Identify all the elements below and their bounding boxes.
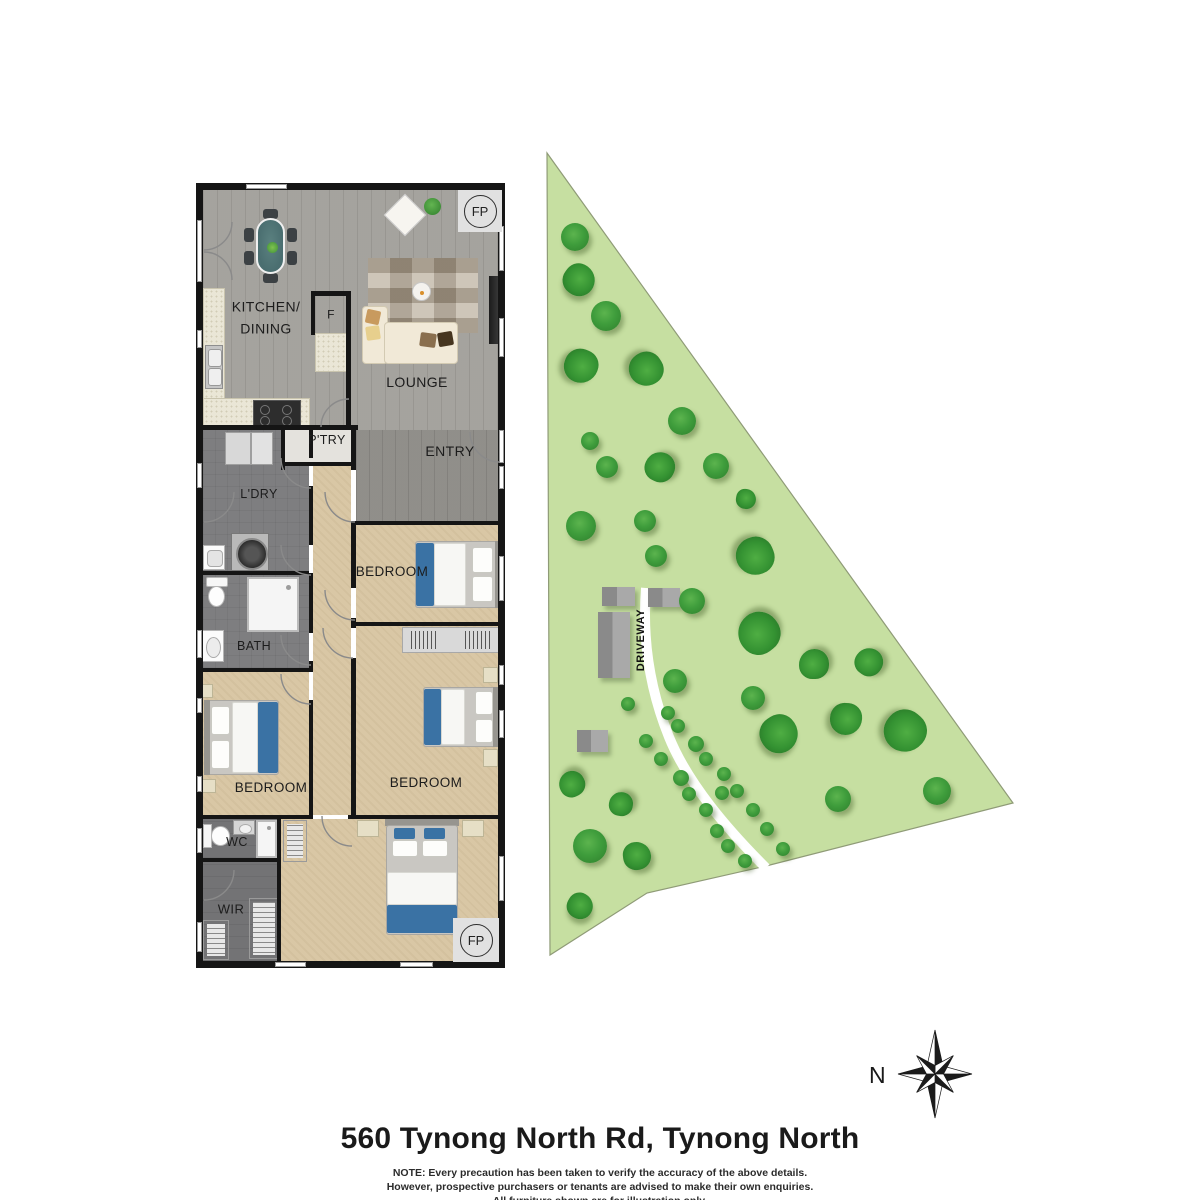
tree-icon — [621, 697, 635, 711]
tree-icon — [645, 545, 667, 567]
tree-icon — [699, 803, 713, 817]
tree-icon — [639, 734, 653, 748]
tree-icon — [663, 669, 687, 693]
tree-icon — [703, 453, 729, 479]
tree-icon — [679, 588, 705, 614]
tree-icon — [654, 752, 668, 766]
tree-icon — [661, 706, 675, 720]
tree-icon — [596, 456, 618, 478]
tree-icon — [741, 686, 765, 710]
tree-icon — [923, 777, 951, 805]
tree-icon — [710, 824, 724, 838]
page: KITCHEN/ DININGFLOUNGEENTRYP'TRYL'DRYBAT… — [0, 0, 1200, 1200]
tree-icon — [717, 767, 731, 781]
driveway-label: DRIVEWAY — [635, 609, 647, 671]
address-title: 560 Tynong North Rd, Tynong North — [0, 1122, 1200, 1156]
disclaimer-note: NOTE: Every precaution has been taken to… — [0, 1166, 1200, 1200]
tree-icon — [671, 719, 685, 733]
tree-icon — [566, 511, 596, 541]
tree-icon — [799, 649, 830, 680]
tree-icon — [738, 854, 752, 868]
building — [598, 612, 630, 678]
land-parcel — [0, 0, 1200, 1200]
tree-icon — [634, 510, 656, 532]
disclaimer-line: However, prospective purchasers or tenan… — [0, 1180, 1200, 1194]
disclaimer-line: All furniture shown are for illustration… — [0, 1194, 1200, 1200]
tree-icon — [825, 786, 851, 812]
building — [577, 730, 608, 752]
compass-star-icon — [889, 1028, 981, 1120]
tree-icon — [668, 407, 696, 435]
tree-icon — [573, 829, 607, 863]
tree-icon — [591, 301, 621, 331]
building — [602, 587, 635, 606]
tree-icon — [673, 770, 689, 786]
tree-icon — [715, 786, 729, 800]
tree-icon — [581, 432, 599, 450]
tree-icon — [699, 752, 713, 766]
tree-icon — [760, 822, 774, 836]
building — [648, 588, 680, 607]
land-boundary — [547, 153, 1013, 955]
disclaimer-line: NOTE: Every precaution has been taken to… — [0, 1166, 1200, 1180]
compass-north-label: N — [869, 1062, 886, 1089]
tree-icon — [721, 839, 735, 853]
tree-icon — [776, 842, 790, 856]
tree-icon — [688, 736, 704, 752]
tree-icon — [682, 787, 696, 801]
tree-icon — [730, 784, 744, 798]
tree-icon — [746, 803, 760, 817]
tree-icon — [561, 223, 589, 251]
